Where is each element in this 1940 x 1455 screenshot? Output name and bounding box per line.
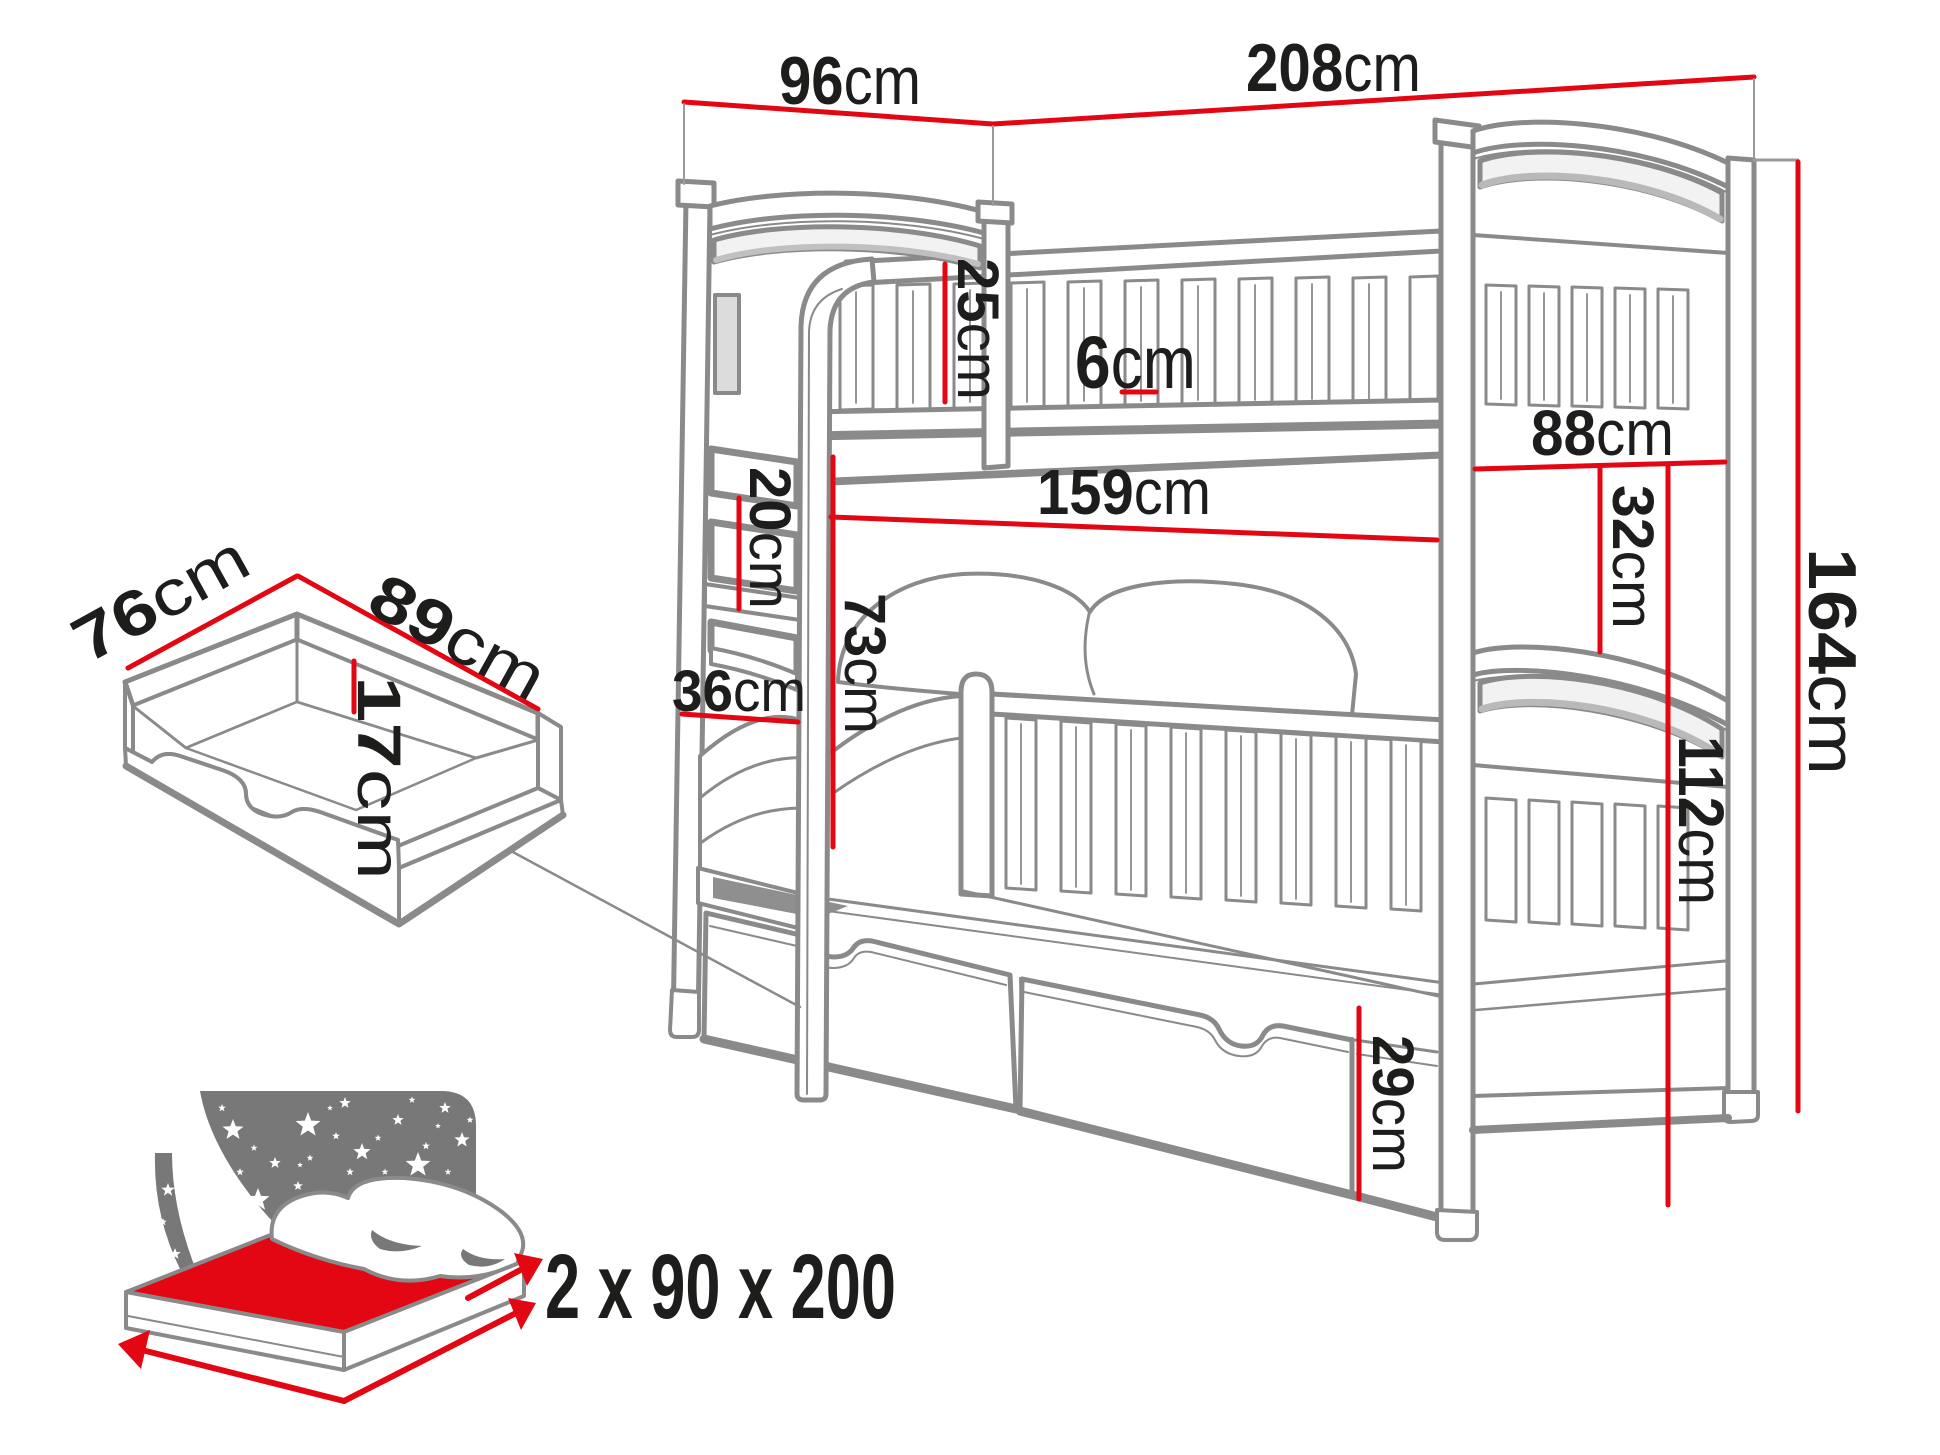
svg-text:25cm: 25cm [945,258,1010,400]
svg-text:159cm: 159cm [1037,456,1211,528]
svg-text:112cm: 112cm [1665,736,1737,905]
svg-text:2 x 90 x 200: 2 x 90 x 200 [545,1236,896,1338]
svg-text:96cm: 96cm [779,43,921,119]
svg-text:208cm: 208cm [1246,30,1421,106]
svg-text:20cm: 20cm [737,467,802,609]
svg-text:17cm: 17cm [345,676,413,880]
svg-text:32cm: 32cm [1600,485,1665,629]
svg-text:88cm: 88cm [1531,397,1674,469]
svg-text:164cm: 164cm [1794,548,1870,775]
svg-text:73cm: 73cm [832,593,897,734]
svg-text:6cm: 6cm [1075,321,1196,404]
svg-text:36cm: 36cm [672,659,806,724]
svg-text:29cm: 29cm [1360,1035,1425,1173]
